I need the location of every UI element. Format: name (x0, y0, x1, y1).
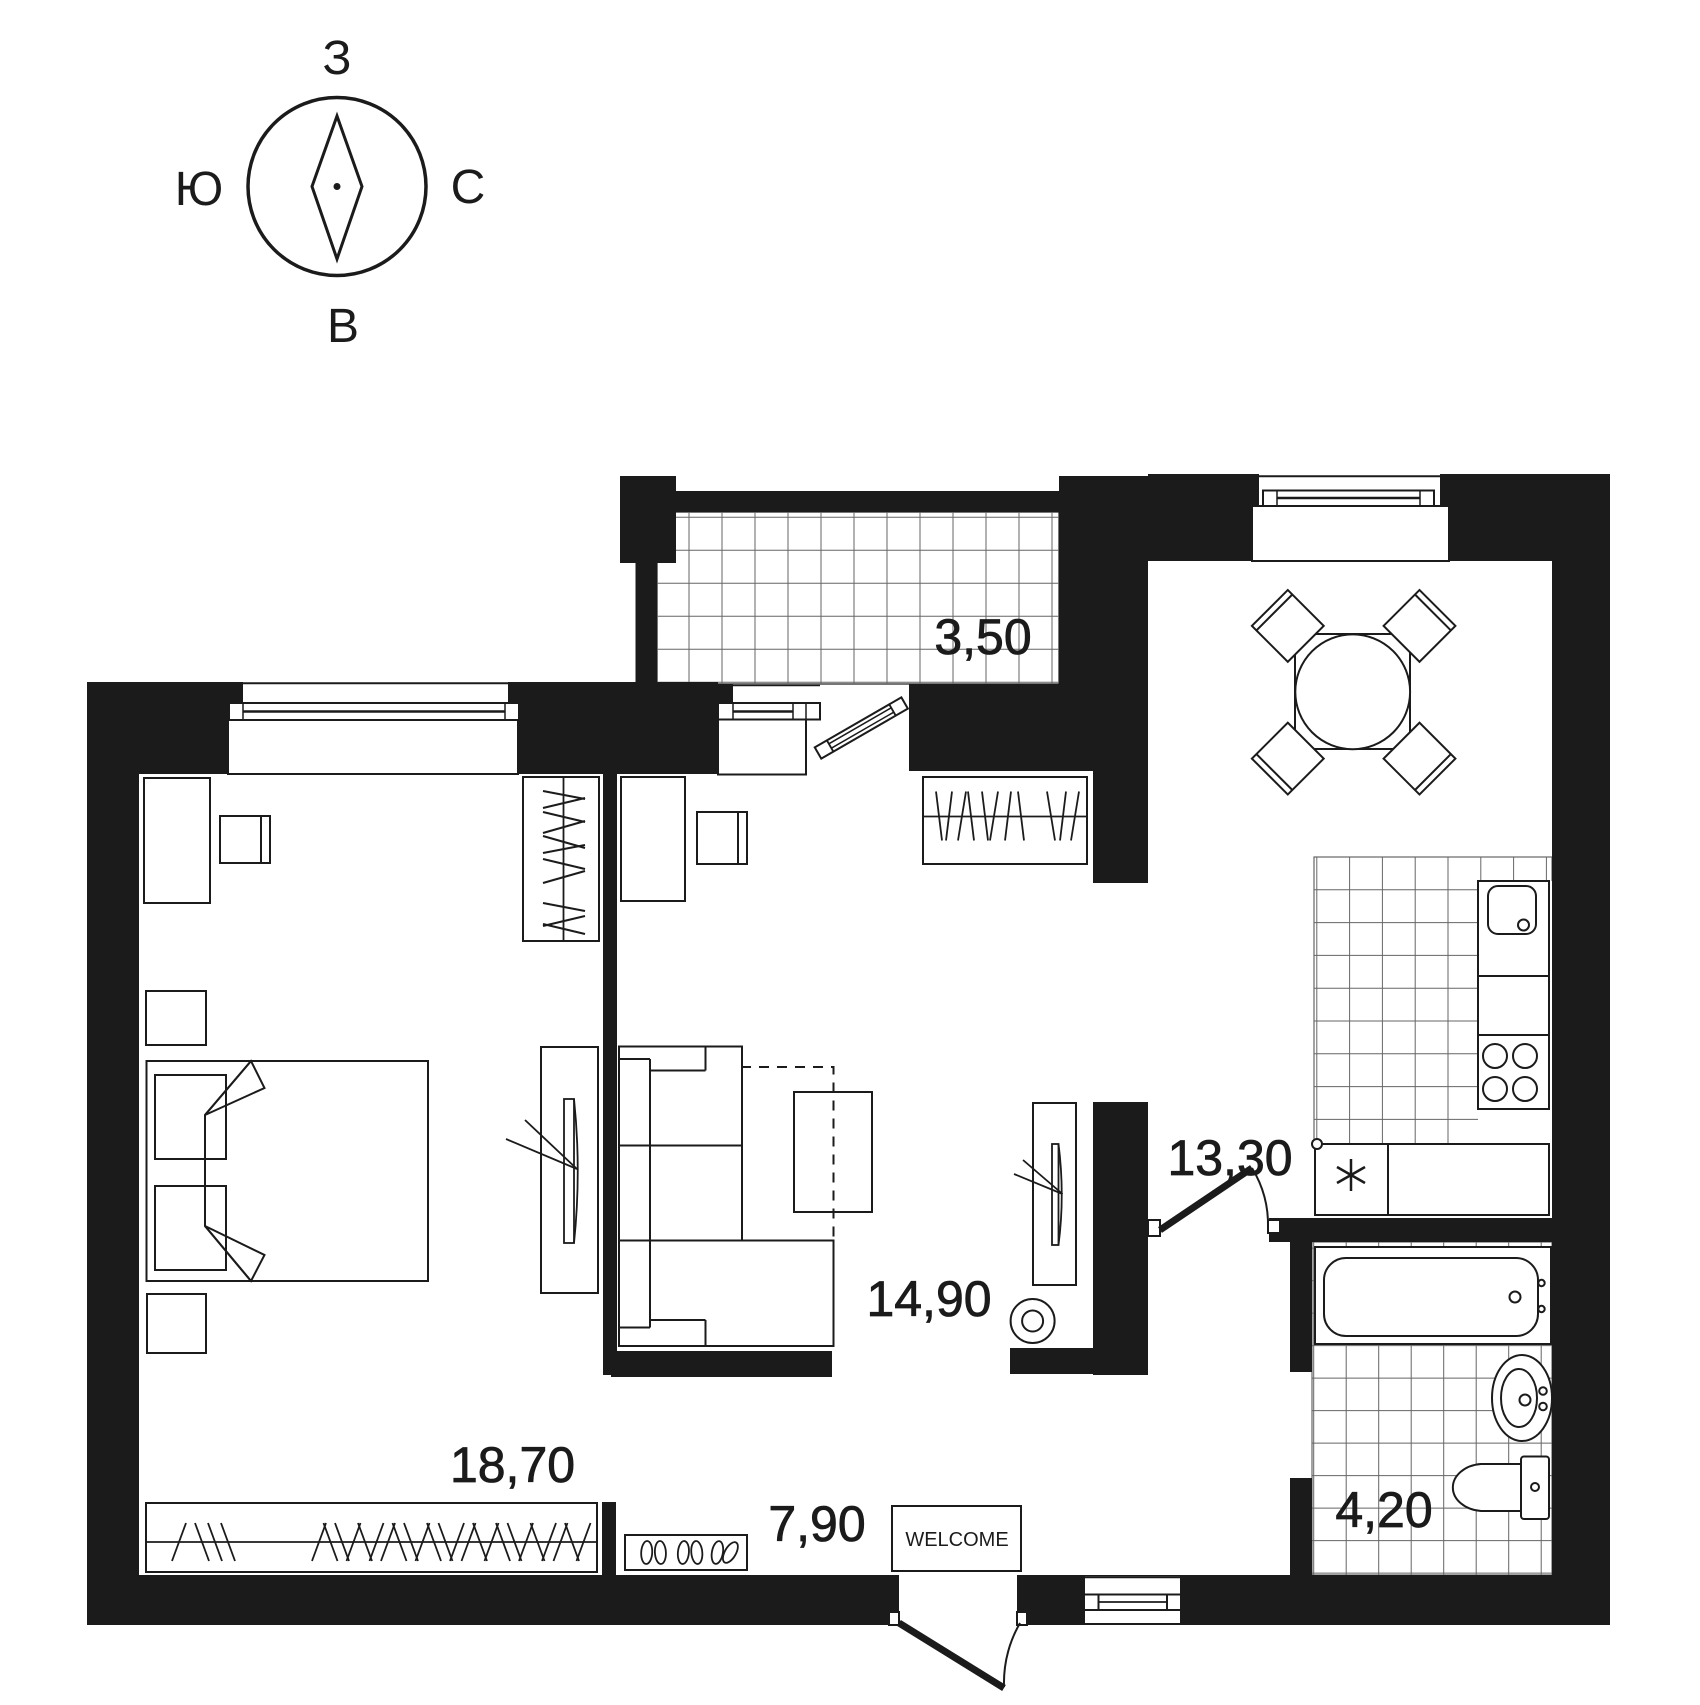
svg-text:С: С (451, 161, 486, 214)
svg-text:18,70: 18,70 (450, 1437, 575, 1493)
svg-text:14,90: 14,90 (866, 1271, 991, 1327)
svg-text:WELCOME: WELCOME (905, 1529, 1008, 1551)
svg-text:Ю: Ю (175, 163, 224, 216)
svg-text:В: В (327, 300, 359, 353)
svg-text:З: З (323, 32, 352, 85)
svg-text:13,30: 13,30 (1167, 1130, 1292, 1186)
svg-text:4,20: 4,20 (1335, 1482, 1432, 1538)
svg-text:7,90: 7,90 (768, 1496, 865, 1552)
svg-text:3,50: 3,50 (934, 609, 1031, 665)
